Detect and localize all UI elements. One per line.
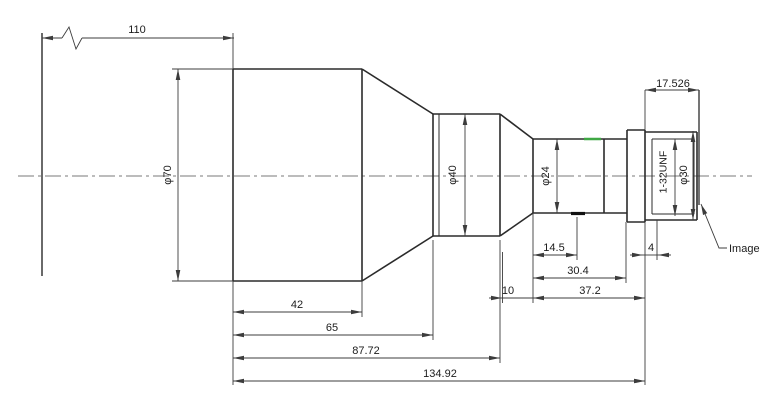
lens-drawing-canvas: 110 17.526 14.5 30.4 10 37.2 4 42 65 87.… xyxy=(0,0,760,403)
dim-14-5-label: 14.5 xyxy=(543,242,564,254)
dim-65-label: 65 xyxy=(326,322,338,334)
dim-134-92-label: 134.92 xyxy=(423,368,457,380)
image-plane-label: Image xyxy=(729,243,760,255)
extension-lines xyxy=(172,33,657,385)
phi40-barrel xyxy=(433,114,500,236)
dim-17-526-label: 17.526 xyxy=(656,78,690,90)
phi70-barrel xyxy=(233,69,362,281)
lens-drawing: 110 17.526 14.5 30.4 10 37.2 4 42 65 87.… xyxy=(0,0,760,403)
taper-40-24 xyxy=(500,114,533,236)
dimension-lines xyxy=(42,27,727,381)
phi30-label: φ30 xyxy=(678,165,690,184)
phi40-label: φ40 xyxy=(447,165,459,184)
image-leader-arrow xyxy=(701,204,727,248)
dim-87-72-label: 87.72 xyxy=(352,345,380,357)
dim-4-label: 4 xyxy=(648,242,654,254)
dim-10-label: 10 xyxy=(502,285,514,297)
dim-30-4-label: 30.4 xyxy=(567,265,588,277)
dim-110-label: 110 xyxy=(128,24,146,36)
thread-spec-label: 1-32UNF xyxy=(658,151,670,194)
phi70-label: φ70 xyxy=(162,165,174,184)
phi24-label: φ24 xyxy=(540,166,552,185)
dim-42-label: 42 xyxy=(291,299,303,311)
taper-70-40 xyxy=(362,69,433,281)
dim-37-2-label: 37.2 xyxy=(579,285,600,297)
dim-break-symbol xyxy=(62,27,82,49)
